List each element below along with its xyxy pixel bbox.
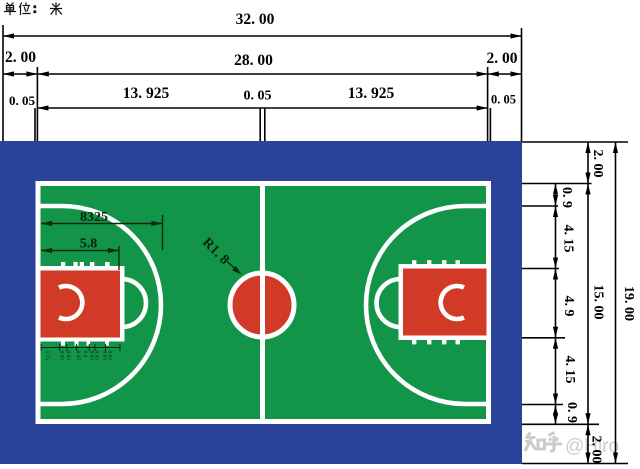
svg-text:2. 00: 2. 00	[590, 150, 605, 178]
svg-text:0. 05: 0. 05	[244, 89, 272, 104]
svg-text:2. 00: 2. 00	[487, 50, 518, 67]
svg-text:2. 00: 2. 00	[589, 436, 604, 464]
svg-text:8325: 8325	[80, 210, 108, 225]
svg-text:15. 00: 15. 00	[591, 285, 606, 320]
svg-text:0.85: 0.85	[59, 351, 65, 361]
svg-text:2. 00: 2. 00	[5, 49, 36, 66]
svg-text:28. 00: 28. 00	[234, 52, 273, 69]
svg-text:0.85: 0.85	[65, 351, 71, 361]
svg-text:4. 15: 4. 15	[562, 356, 577, 384]
svg-text:32. 00: 32. 00	[236, 11, 275, 28]
svg-text:0.4: 0.4	[82, 351, 88, 358]
svg-text:4. 15: 4. 15	[561, 225, 576, 253]
svg-text:0. 05: 0. 05	[9, 93, 36, 108]
svg-text:1.75: 1.75	[44, 351, 50, 361]
svg-text:0. 9: 0. 9	[564, 402, 579, 423]
svg-text:5.8: 5.8	[80, 237, 98, 252]
svg-text:13. 925: 13. 925	[348, 85, 395, 102]
svg-text:0.05: 0.05	[107, 351, 113, 361]
svg-text:0.85: 0.85	[94, 351, 100, 361]
svg-text:0.85: 0.85	[75, 351, 81, 361]
svg-text:4. 9: 4. 9	[561, 296, 576, 317]
svg-text:0. 05: 0. 05	[491, 93, 516, 107]
svg-text:19. 00: 19. 00	[621, 286, 636, 321]
svg-text:13. 925: 13. 925	[123, 85, 170, 102]
svg-text:0. 9: 0. 9	[559, 187, 574, 208]
